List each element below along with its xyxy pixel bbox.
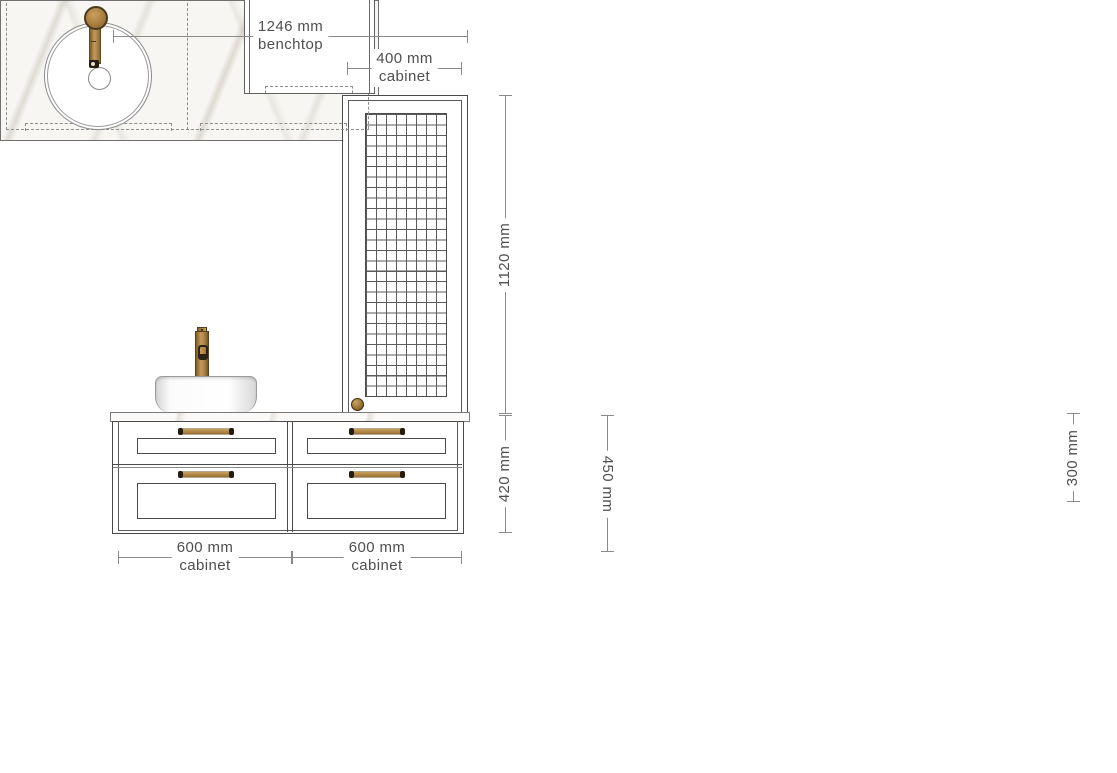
drawer-handle-bottom-left bbox=[180, 472, 232, 477]
dimension-value: 600 mm bbox=[177, 539, 234, 557]
dimension-name: cabinet bbox=[349, 557, 406, 575]
dimension-tick bbox=[347, 62, 348, 75]
plan-faucet-outlet bbox=[89, 60, 99, 68]
drawer-panel-top-left bbox=[137, 438, 276, 454]
dimension-tick bbox=[499, 532, 512, 533]
dimension-tick bbox=[1067, 413, 1080, 414]
dimension-value: 600 mm bbox=[349, 539, 406, 557]
vanity-center-divider bbox=[287, 421, 293, 532]
drawer-handle-bottom-right bbox=[351, 472, 403, 477]
dimension-tick bbox=[1067, 501, 1080, 502]
dimension-tick bbox=[292, 551, 293, 564]
dimension-value: 1246 mm bbox=[258, 18, 323, 36]
plan-dashed-under-tall-cabinet bbox=[265, 86, 353, 93]
dimension-tick bbox=[461, 62, 462, 75]
dimension-value: 450 mm bbox=[597, 450, 617, 517]
drawer-panel-bottom-left bbox=[137, 483, 276, 519]
dimension-tick bbox=[601, 415, 614, 416]
dimension-tick bbox=[113, 30, 114, 43]
dimension-tick bbox=[601, 551, 614, 552]
dimension-tick bbox=[499, 95, 512, 96]
plan-dashed-center-divider bbox=[187, 3, 188, 130]
dimension-text: 600 mm cabinet bbox=[172, 538, 239, 576]
tall-cabinet-knob bbox=[351, 398, 364, 411]
dimension-value: 1120 mm bbox=[495, 217, 515, 291]
plan-dashed-drawer-right bbox=[200, 123, 347, 131]
dimension-tick bbox=[467, 30, 468, 43]
dimension-text: 600 mm cabinet bbox=[344, 538, 411, 576]
dimension-tick bbox=[499, 413, 512, 414]
drawer-panel-top-right bbox=[307, 438, 446, 454]
faucet-handle-front bbox=[198, 345, 208, 360]
dimension-name: cabinet bbox=[376, 68, 433, 86]
vanity-row-divider bbox=[113, 464, 462, 468]
plan-dashed-right-side bbox=[368, 92, 369, 129]
drawer-panel-bottom-right bbox=[307, 483, 446, 519]
vessel-sink-front bbox=[155, 376, 257, 413]
dimension-name: cabinet bbox=[177, 557, 234, 575]
drawing-canvas: 1246 mm benchtop 400 mm cabinet 600 mm c… bbox=[0, 0, 1117, 773]
dimension-value: 420 mm bbox=[495, 441, 515, 508]
dimension-tick bbox=[461, 551, 462, 564]
plan-dashed-left-side bbox=[6, 3, 7, 130]
dimension-text: 1246 mm benchtop bbox=[253, 17, 328, 55]
drawer-handle-top-right bbox=[351, 429, 403, 434]
dimension-value: 400 mm bbox=[376, 50, 433, 68]
dimension-tick bbox=[118, 551, 119, 564]
dimension-tick bbox=[499, 415, 512, 416]
dimension-name: benchtop bbox=[258, 36, 323, 54]
plan-faucet-base bbox=[84, 6, 108, 30]
plan-faucet-spout bbox=[89, 26, 101, 64]
dimension-value: 300 mm bbox=[1063, 424, 1083, 491]
plan-drain-hole bbox=[88, 67, 111, 90]
dimension-text: 400 mm cabinet bbox=[371, 49, 438, 87]
tall-cabinet-mesh-door bbox=[365, 113, 447, 397]
drawer-handle-top-left bbox=[180, 429, 232, 434]
